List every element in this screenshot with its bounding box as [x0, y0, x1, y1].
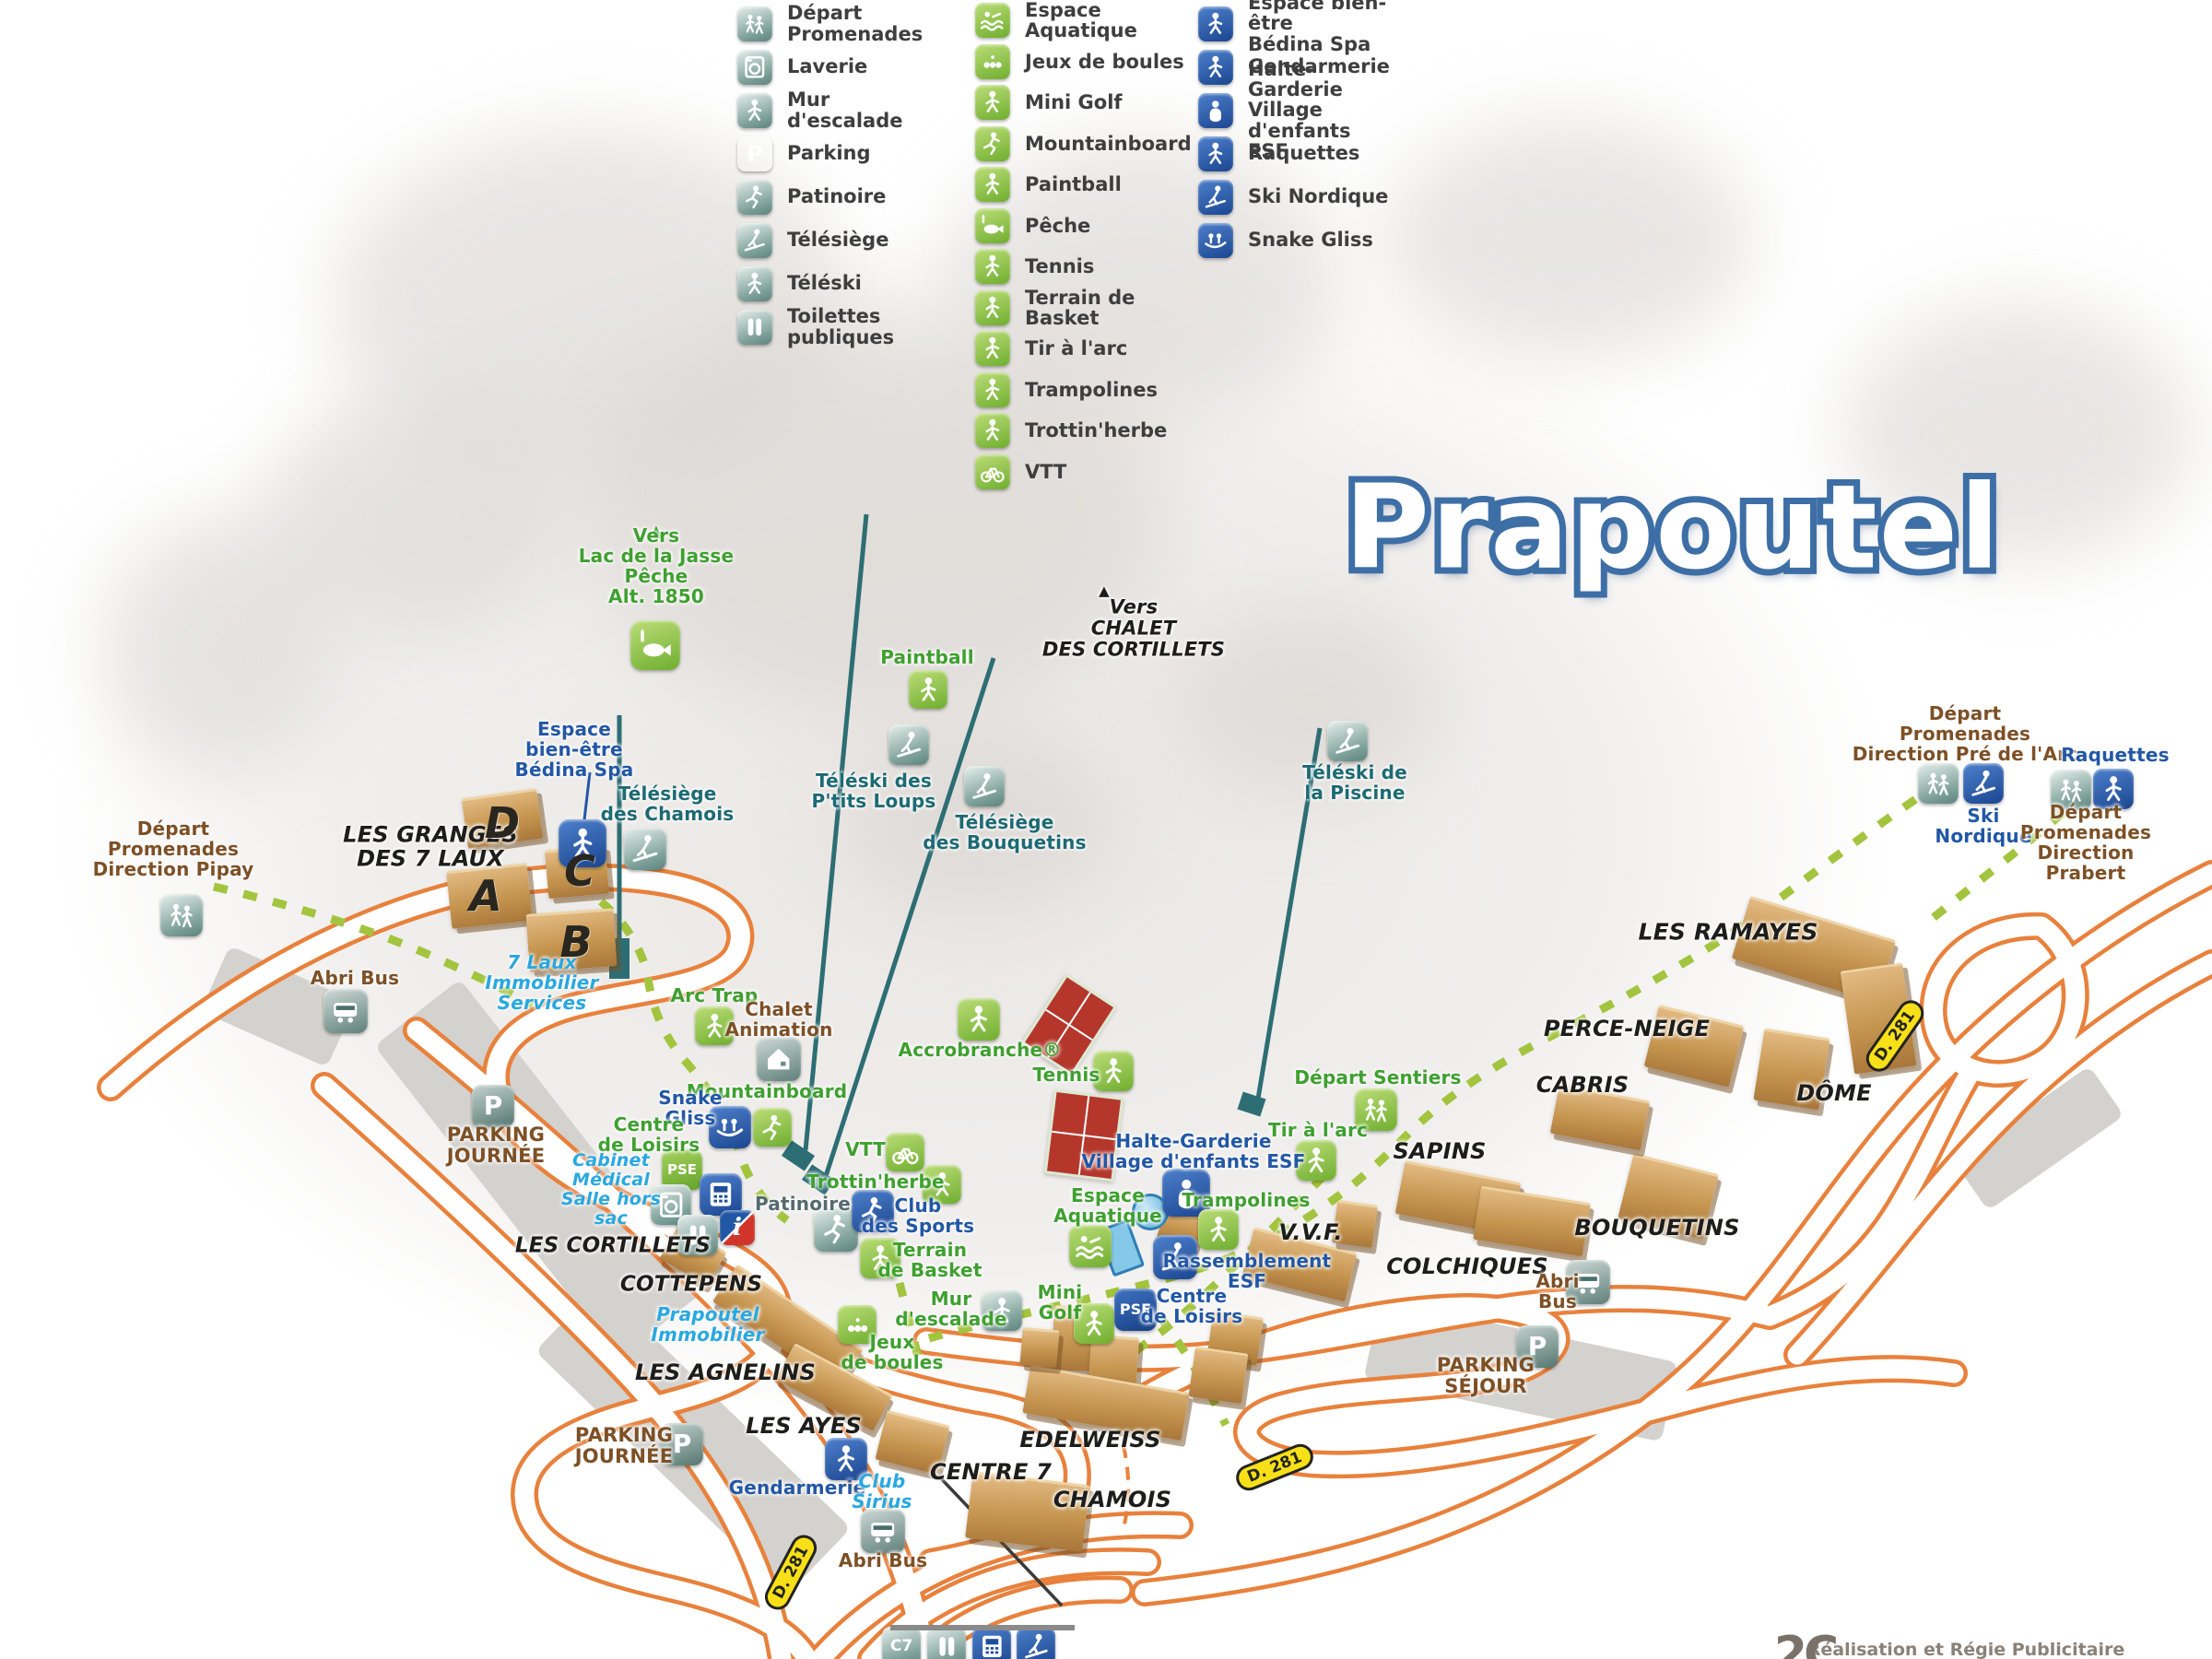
- strip-distributeur-icon[interactable]: [972, 1627, 1011, 1659]
- legend-item: PParking: [737, 132, 923, 175]
- legend-item-label: Trottin'herbe: [1025, 420, 1167, 441]
- child-glyph: [1202, 97, 1230, 124]
- legend-item: Ski Nordique: [1198, 175, 1390, 218]
- label-accrobranche: Accrobranche®: [899, 1040, 1062, 1060]
- legend-item: Mountainboard: [975, 124, 1192, 165]
- label-sapins: SAPINS: [1394, 1139, 1487, 1163]
- label-ski-nordique: Ski Nordique: [1935, 806, 2031, 846]
- legend-item: Snake Gliss: [1198, 218, 1390, 262]
- label-terrain-basket: Terrain de Basket: [877, 1240, 982, 1280]
- label-depart-prabert: Départ Promenades Direction Prabert: [2020, 802, 2151, 883]
- label-chalet-animation: Chalet Animation: [724, 999, 832, 1040]
- legend-item-label: Trampolines: [1025, 380, 1158, 400]
- label-tennis: Tennis: [1033, 1065, 1100, 1085]
- label-dome: DÔME: [1796, 1081, 1871, 1105]
- building-block: [1473, 1185, 1591, 1256]
- person-icon: [1198, 6, 1233, 41]
- legend-item: Patinoire: [737, 175, 923, 218]
- building-block: [1019, 1327, 1059, 1368]
- wc-icon: [737, 310, 772, 345]
- legend-item-label: Paintball: [1025, 174, 1122, 194]
- legend-item: Mur d'escalade: [737, 88, 923, 132]
- teleski-piscine-icon[interactable]: [1327, 721, 1368, 761]
- person-glyph: [741, 97, 769, 124]
- legend-item-label: Snake Gliss: [1248, 229, 1373, 250]
- label-chamois-res: CHAMOIS: [1053, 1488, 1171, 1512]
- label-mur-escalade: Mur d'escalade: [895, 1288, 1007, 1329]
- granges-block-c: C: [564, 846, 595, 896]
- strip-toilettes-icon[interactable]: [927, 1627, 966, 1659]
- wc-glyph: [741, 313, 769, 341]
- swim-glyph: [1074, 1230, 1107, 1263]
- fish-icon: [975, 208, 1010, 243]
- granges-block-b: B: [559, 917, 592, 967]
- road-badge-d281-centre: D. 281: [1232, 1441, 1317, 1495]
- person-glyph: [962, 1003, 995, 1036]
- label-cabinet-medical: Cabinet Médical Salle hors sac: [561, 1151, 661, 1229]
- label-perce-neige: PERCE-NEIGE: [1544, 1017, 1710, 1041]
- skater-glyph: [979, 130, 1006, 158]
- atm-glyph: [977, 1631, 1007, 1659]
- skier-glyph: [1202, 183, 1230, 211]
- skier-glyph: [1968, 768, 1999, 799]
- label-espace-aquatique: Espace Aquatique: [1053, 1185, 1162, 1226]
- label-trottin-herbe: Trottin'herbe: [806, 1171, 945, 1192]
- label-vvf: V.V.F.: [1278, 1220, 1342, 1244]
- fish-glyph: [979, 212, 1006, 240]
- label-abri-bus-ayes: Abri Bus: [839, 1550, 927, 1571]
- legend-item: Halte-Garderie Village d'enfants ESF: [1198, 88, 1390, 132]
- label-vers-lac-jasse: Vers Lac de la Jasse Pêche Alt. 1850: [579, 525, 735, 606]
- person-icon: [975, 167, 1010, 202]
- label-mini-golf: Mini Golf: [1038, 1282, 1083, 1323]
- legend-item: Trampolines: [975, 370, 1192, 411]
- peche-icon[interactable]: [630, 620, 680, 670]
- label-depart-pipay: Départ Promenades Direction Pipay: [93, 818, 254, 879]
- parking-area: [1953, 1065, 2124, 1210]
- person-glyph: [1202, 10, 1230, 38]
- label-cottepens: COTTEPENS: [620, 1273, 762, 1296]
- sled-glyph: [1202, 227, 1230, 254]
- label-les-agnelins: LES AGNELINS: [635, 1360, 816, 1384]
- swim-icon: [975, 3, 1010, 38]
- skater-glyph: [741, 183, 769, 211]
- label-vers-chalet-cortillets: Vers CHALET DES CORTILLETS: [1042, 596, 1225, 660]
- person-glyph: [979, 171, 1006, 198]
- label-paintball: Paintball: [880, 647, 974, 667]
- telesiege-chamois-icon[interactable]: [624, 828, 666, 870]
- credit-line: Réalisation et Régie Publicitaire: [1807, 1640, 2125, 1659]
- legend-column-3: Espace bien-être Bédina SpaGendarmerieHa…: [1198, 2, 1390, 262]
- person-glyph: [1098, 1055, 1129, 1087]
- label-tir-arc: Tir à l'arc: [1268, 1120, 1368, 1140]
- espace-aquatique-icon[interactable]: [1069, 1225, 1112, 1267]
- info-icon-glyph: i: [733, 1216, 742, 1240]
- label-club-sirius: Club Sirius: [852, 1471, 912, 1512]
- label-abri-bus-ouest: Abri Bus: [311, 968, 399, 988]
- person-glyph: [979, 253, 1006, 280]
- hikers-glyph: [741, 10, 769, 38]
- legend-item-label: Tir à l'arc: [1025, 338, 1127, 359]
- legend-item-label: Mini Golf: [1025, 92, 1123, 112]
- p-icon-glyph: P: [747, 143, 763, 165]
- info-icon[interactable]: i: [720, 1210, 755, 1245]
- label-les-ramayes: LES RAMAYES: [1638, 919, 1818, 945]
- label-parking-journee-sud: PARKING JOURNÉE: [575, 1425, 674, 1467]
- pre-arc-ski-nordique-icon[interactable]: [1963, 763, 2004, 804]
- legend-item: Jeux de boules: [975, 41, 1192, 83]
- label-les-ayes: LES AYES: [746, 1414, 862, 1438]
- legend-column-1: Départ PromenadesLaverieMur d'escaladePP…: [737, 2, 923, 348]
- person-glyph: [741, 270, 769, 298]
- label-les-cortillets: LES CORTILLETS: [515, 1234, 711, 1257]
- strip-c7-icon[interactable]: C7: [882, 1627, 921, 1659]
- bike-icon: [975, 454, 1010, 489]
- legend-item: Terrain de Basket: [975, 288, 1192, 329]
- skater-glyph: [758, 1112, 788, 1143]
- pre-arc-hikers-icon[interactable]: [1918, 763, 1959, 804]
- person-glyph: [979, 335, 1006, 362]
- swim-glyph: [979, 6, 1006, 34]
- legend-item: VTT: [975, 452, 1192, 493]
- person-glyph: [913, 675, 944, 705]
- person-glyph: [979, 88, 1006, 116]
- legend-item-label: Téléski: [787, 273, 862, 293]
- label-telesiege-chamois: Télésiège des Chamois: [601, 783, 735, 824]
- wc-glyph: [932, 1631, 962, 1659]
- legend-item-label: Raquettes: [1248, 143, 1359, 163]
- label-teleski-ptits-loups: Téléski des P'tits Loups: [812, 771, 936, 811]
- person-glyph: [979, 294, 1006, 322]
- label-bouquetins-res: BOUQUETINS: [1574, 1216, 1739, 1240]
- person-glyph: [1078, 1308, 1110, 1339]
- bike-glyph: [890, 1137, 921, 1168]
- person-icon: [975, 290, 1010, 325]
- resort-title-text: Prapoutel: [1345, 460, 2002, 595]
- resort-map-canvas[interactable]: PSEiPSEPPPC7▲Vers Lac de la Jasse Pêche …: [0, 0, 2212, 1659]
- parking-journee-ouest-icon[interactable]: P: [472, 1085, 514, 1127]
- fish-glyph: [636, 626, 675, 665]
- person-icon: [1198, 50, 1233, 85]
- parking-journee-ouest-icon-glyph: P: [484, 1093, 503, 1119]
- strip-ski-icon[interactable]: [1017, 1627, 1055, 1659]
- skier-glyph: [893, 729, 924, 760]
- legend-item: Pêche: [975, 206, 1192, 247]
- legend-item-label: Toilettes publiques: [787, 306, 923, 347]
- label-jeux-de-boules: Jeux de boules: [841, 1332, 943, 1372]
- label-telesiege-bouquetins: Télésiège des Bouquetins: [923, 812, 1086, 853]
- legend-item-label: Patinoire: [787, 186, 886, 206]
- legend-item: Laverie: [737, 45, 923, 88]
- vtt-icon[interactable]: [886, 1133, 924, 1171]
- person-icon: [975, 413, 1010, 448]
- person-icon: [737, 266, 772, 301]
- legend-item: Tennis: [975, 246, 1192, 288]
- telesiege-bouquetins-icon[interactable]: [964, 766, 1005, 806]
- label-patinoire: Patinoire: [755, 1194, 851, 1214]
- label-prapoutel-immobilier: Prapoutel Immobilier: [651, 1304, 764, 1345]
- label-edelweiss: EDELWEISS: [1019, 1428, 1160, 1452]
- bus-glyph: [865, 1513, 900, 1547]
- mountainboard-icon[interactable]: [753, 1108, 792, 1147]
- skier-glyph: [1332, 725, 1363, 757]
- granges-block-a: A: [469, 871, 502, 921]
- person-icon: [737, 93, 772, 128]
- legend-item-label: Mur d'escalade: [787, 89, 923, 130]
- skater-icon: [975, 126, 1010, 161]
- legend-item-label: Télésiège: [787, 229, 888, 250]
- depart-promenades-pipay-icon[interactable]: [160, 894, 203, 936]
- legend-column-2: Espace AquatiqueJeux de boulesMini GolfM…: [975, 0, 1192, 492]
- skater-icon: [737, 180, 772, 215]
- hikers-glyph: [165, 899, 198, 932]
- person-glyph: [1202, 140, 1230, 168]
- legend-item-label: Mountainboard: [1025, 134, 1192, 154]
- label-raquettes: Raquettes: [2061, 745, 2169, 765]
- publisher-logo: 2C: [1774, 1627, 1835, 1659]
- skier-glyph: [741, 227, 769, 254]
- trampolines-icon[interactable]: [1198, 1209, 1239, 1250]
- person-glyph: [979, 417, 1006, 444]
- label-rassemblement-esf: Rassemblement ESF: [1163, 1251, 1332, 1291]
- person-glyph: [979, 376, 1006, 404]
- label-teleski-piscine: Téléski de la Piscine: [1302, 762, 1407, 803]
- paintball-icon[interactable]: [909, 670, 947, 709]
- legend-item: Télésiège: [737, 218, 923, 262]
- abri-bus-ouest-icon[interactable]: [324, 989, 368, 1033]
- legend-item-label: VTT: [1025, 462, 1066, 482]
- parking-journee-sud-icon-glyph: P: [673, 1431, 692, 1457]
- washer-icon: [737, 50, 772, 85]
- child-icon: [1198, 93, 1233, 128]
- person-icon: [975, 249, 1010, 284]
- bus-glyph: [328, 994, 362, 1028]
- person-icon: [1198, 136, 1233, 171]
- person-glyph: [1202, 53, 1230, 81]
- legend-item-label: Terrain de Basket: [1025, 288, 1192, 328]
- label-gendarmerie: Gendarmerie: [729, 1477, 866, 1498]
- person-glyph: [2098, 773, 2129, 805]
- teleski-ptits-loups-icon[interactable]: [888, 724, 929, 765]
- legend-item-label: Espace Aquatique: [1025, 0, 1192, 41]
- boules-glyph: [979, 48, 1006, 76]
- label-trampolines: Trampolines: [1182, 1190, 1310, 1210]
- legend-item-label: Pêche: [1025, 216, 1090, 236]
- label-espace-bien-etre: Espace bien-être Bédina Spa: [515, 719, 634, 780]
- person-icon: [975, 331, 1010, 366]
- granges-block-d: D: [485, 798, 520, 848]
- legend-item-label: Ski Nordique: [1248, 186, 1388, 206]
- label-depart-sentiers: Départ Sentiers: [1294, 1067, 1461, 1088]
- person-glyph: [1203, 1214, 1234, 1245]
- legend-item: Paintball: [975, 164, 1192, 206]
- skier-glyph: [629, 832, 662, 865]
- skier-glyph: [969, 771, 1000, 802]
- person-icon: [975, 372, 1010, 407]
- legend-item: Trottin'herbe: [975, 410, 1192, 452]
- legend-item-label: Espace bien-être Bédina Spa: [1248, 0, 1390, 54]
- house-glyph: [761, 1041, 795, 1076]
- label-vtt: VTT: [845, 1139, 886, 1159]
- label-centre-7: CENTRE 7: [930, 1460, 1052, 1484]
- legend-item-label: Tennis: [1025, 256, 1094, 276]
- strip-c7-icon-glyph: C7: [890, 1639, 912, 1654]
- legend-item: Espace Aquatique: [975, 0, 1192, 41]
- skier-icon: [1198, 180, 1233, 215]
- legend-item: Mini Golf: [975, 82, 1192, 124]
- label-depart-pre-de-larc: Départ Promenades Direction Pré de l'Arc: [1853, 703, 2078, 764]
- label-club-des-sports: Club des Sports: [862, 1195, 975, 1236]
- hikers-glyph: [1923, 768, 1954, 799]
- boules-icon: [975, 44, 1010, 79]
- hikers-icon: [737, 6, 772, 41]
- label-centre-loisirs-ouest: Centre de Loisirs: [598, 1114, 700, 1155]
- legend-item-label: Jeux de boules: [1025, 52, 1184, 72]
- sled-icon: [1198, 223, 1233, 258]
- atm-glyph: [704, 1178, 737, 1211]
- legend-item: Espace bien-être Bédina Spa: [1198, 2, 1390, 45]
- info-strip-bar: [890, 1625, 1075, 1630]
- skater-glyph: [818, 1212, 853, 1246]
- legend-item: Téléski: [737, 262, 923, 305]
- legend-item-label: Laverie: [787, 56, 867, 76]
- label-parking-journee-ouest: PARKING JOURNÉE: [447, 1124, 546, 1167]
- legend-item-label: Parking: [787, 143, 871, 163]
- skier-icon: [737, 223, 772, 258]
- skier-glyph: [1021, 1631, 1052, 1659]
- legend-item: Toilettes publiques: [737, 305, 923, 348]
- chalet-animation-icon[interactable]: [757, 1037, 801, 1081]
- washer-glyph: [741, 53, 769, 81]
- legend-item-label: Départ Promenades: [787, 3, 923, 43]
- label-abri-bus-colchiques: Abri Bus: [1535, 1271, 1579, 1312]
- label-parking-sejour: PARKING SÉJOUR: [1437, 1355, 1535, 1397]
- accrobranche-icon[interactable]: [958, 998, 1000, 1041]
- lift-line-piscine-station: [1238, 1091, 1266, 1116]
- label-colchiques: COLCHIQUES: [1386, 1254, 1548, 1278]
- person-icon: [975, 85, 1010, 120]
- label-cabris: CABRIS: [1536, 1073, 1629, 1097]
- terrain-blob: [263, 396, 567, 636]
- pse-ouest-icon-glyph: PSE: [667, 1163, 697, 1177]
- bike-glyph: [979, 458, 1006, 486]
- legend-item: Départ Promenades: [737, 2, 923, 45]
- p-icon: P: [737, 136, 772, 171]
- legend-item: Tir à l'arc: [975, 328, 1192, 370]
- building-block: [1188, 1347, 1248, 1405]
- abri-bus-ayes-icon[interactable]: [861, 1509, 905, 1553]
- terrain-blob: [1382, 120, 1751, 359]
